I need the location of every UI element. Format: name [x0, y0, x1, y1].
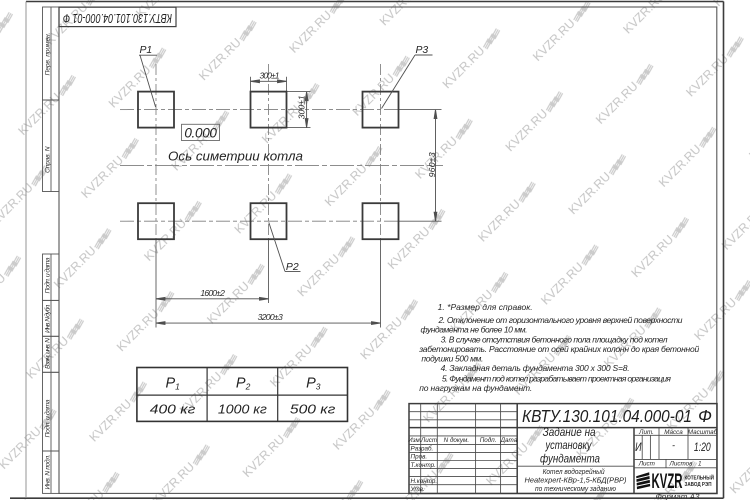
svg-text:Инв. N дубл.: Инв. N дубл.: [43, 304, 51, 333]
svg-text:Т.контр.: Т.контр.: [411, 462, 436, 469]
svg-text:1: 1: [698, 461, 702, 468]
svg-text:Подп. и дата: Подп. и дата: [43, 399, 51, 437]
svg-text:N докум.: N докум.: [444, 436, 469, 444]
svg-text:Подп. и дата: Подп. и дата: [43, 257, 51, 293]
svg-text:Задание на: Задание на: [543, 425, 596, 439]
svg-text:по техническому заданию: по техническому заданию: [535, 484, 616, 493]
svg-text:Разраб.: Разраб.: [411, 445, 434, 453]
svg-text:1. *Размер для справок.: 1. *Размер для справок.: [438, 302, 533, 312]
svg-text:Пров.: Пров.: [411, 454, 428, 461]
svg-text:Масса: Масса: [664, 429, 683, 436]
svg-text:300±1: 300±1: [260, 71, 280, 81]
svg-text:Инв. N подл.: Инв. N подл.: [43, 454, 51, 489]
svg-text:3. В случае отсутствия бетонн: 3. В случае отсутствия бетонного пола пл…: [441, 335, 668, 345]
svg-text:0.000: 0.000: [184, 126, 217, 141]
svg-text:3200±3: 3200±3: [258, 312, 283, 322]
svg-text:Котел водогрейный: Котел водогрейный: [543, 467, 605, 476]
svg-text:Изм.: Изм.: [408, 437, 421, 444]
svg-text:фундамента не более 10 мм.: фундамента не более 10 мм.: [421, 324, 528, 334]
svg-text:Масштаб: Масштаб: [688, 428, 718, 436]
svg-text:2. Отклонение от горизонтальн: 2. Отклонение от горизонтального уровня …: [438, 315, 683, 325]
svg-text:Лист: Лист: [420, 437, 437, 444]
svg-text:1:20: 1:20: [694, 442, 711, 454]
svg-text:300±1: 300±1: [297, 95, 307, 119]
svg-text:Ось симетрии котла: Ось симетрии котла: [168, 149, 303, 164]
svg-text:Утв.: Утв.: [410, 486, 425, 493]
svg-text:Ф: Ф: [698, 406, 712, 426]
svg-text:Лит.: Лит.: [638, 429, 654, 436]
svg-text:Перв. примен.: Перв. примен.: [44, 32, 51, 75]
svg-text:фундамента: фундамента: [540, 451, 600, 465]
svg-text:5. Фундамент под котел разраб: 5. Фундамент под котел разрабатывает про…: [442, 373, 671, 383]
svg-text:ЗАВОД РЭП: ЗАВОД РЭП: [685, 482, 712, 488]
svg-text:Взам. инв. N: Взам. инв. N: [44, 338, 51, 369]
svg-text:P3: P3: [416, 45, 429, 56]
svg-text:КОТЕЛЬНЫЙ: КОТЕЛЬНЫЙ: [685, 473, 715, 481]
svg-text:по нагрузкам на фундамент.: по нагрузкам на фундамент.: [419, 383, 532, 393]
svg-text:Дата: Дата: [500, 437, 518, 444]
svg-text:И: И: [635, 442, 642, 454]
svg-text:500 кг: 500 кг: [290, 401, 336, 416]
svg-text:Подп.: Подп.: [480, 436, 497, 444]
svg-text:P1: P1: [140, 45, 153, 56]
svg-text:1600±2: 1600±2: [200, 288, 225, 298]
svg-text:Справ. N: Справ. N: [44, 146, 51, 173]
svg-text:1000 кг: 1000 кг: [218, 401, 268, 416]
svg-text:400 кг: 400 кг: [150, 401, 196, 416]
svg-text:Лист: Лист: [638, 461, 655, 468]
svg-text:4. Закладная деталь фундамент: 4. Закладная деталь фундамента 300 x 300…: [441, 363, 630, 373]
svg-text:P2: P2: [286, 262, 299, 273]
svg-text:Листов: Листов: [669, 461, 694, 468]
svg-text:Н.контр.: Н.контр.: [411, 478, 438, 485]
svg-text:-: -: [672, 441, 675, 451]
svg-text:960±3: 960±3: [427, 152, 437, 177]
svg-text:КВТУ.130.101.04.000-01: КВТУ.130.101.04.000-01: [522, 406, 692, 426]
svg-text:подушки 500 мм.: подушки 500 мм.: [421, 353, 483, 363]
svg-text:установку: установку: [545, 438, 592, 452]
svg-text:Формат А3: Формат А3: [656, 494, 700, 500]
svg-text:КВТУ.130.101.04.000-01 Ф: КВТУ.130.101.04.000-01 Ф: [63, 11, 172, 26]
svg-text:KVZR: KVZR: [652, 469, 683, 493]
